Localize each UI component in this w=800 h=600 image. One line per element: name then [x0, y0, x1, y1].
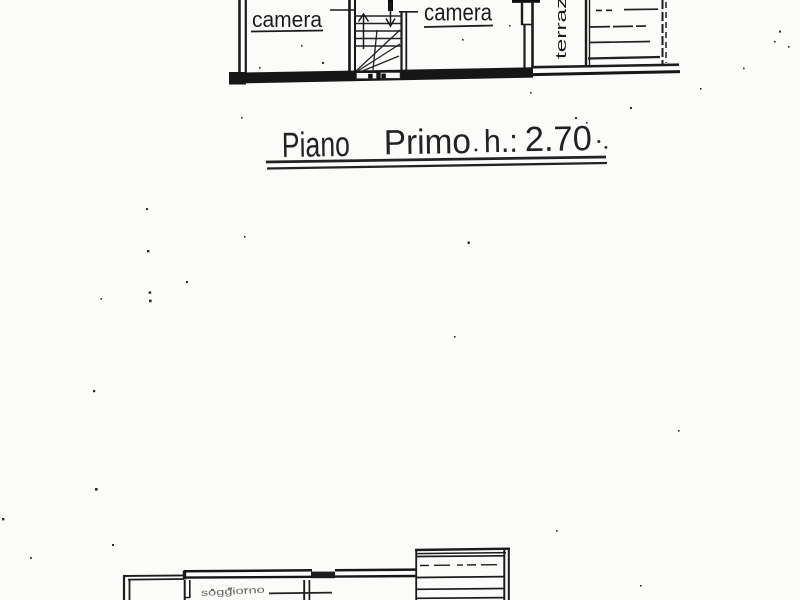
svg-text:h.:: h.: [484, 123, 519, 160]
svg-text:Primo: Primo [384, 122, 472, 162]
svg-text:camera: camera [424, 0, 493, 27]
svg-text:camera: camera [252, 7, 323, 32]
svg-text:Piano: Piano [282, 125, 351, 165]
svg-text:soggiorno: soggiorno [201, 585, 265, 599]
svg-text:2.70: 2.70 [524, 119, 592, 159]
svg-text:terrazzo: terrazzo [554, 0, 570, 59]
